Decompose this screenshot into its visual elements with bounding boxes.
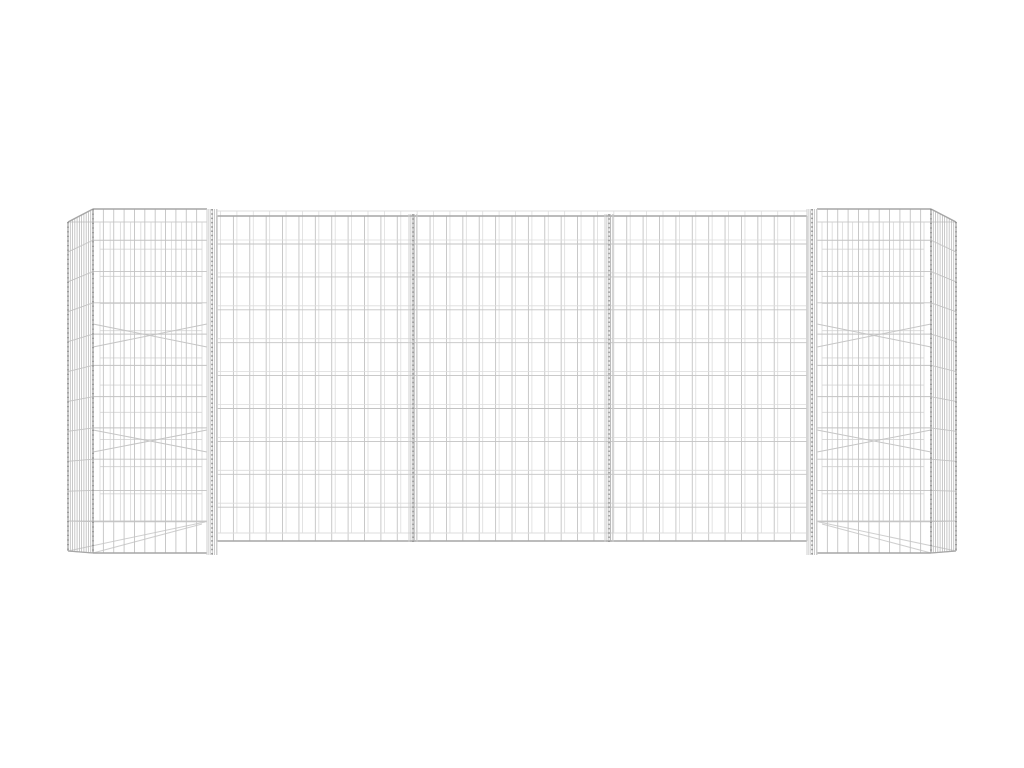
spiral-joint-band	[807, 209, 817, 555]
left-gabion-column	[68, 209, 217, 555]
column-side-face	[68, 209, 93, 553]
gabion-planter-illustration	[0, 0, 1024, 768]
wall-mesh-divider	[409, 214, 417, 542]
wall-mesh-divider	[605, 214, 613, 542]
gabion-wall-panel	[217, 211, 811, 542]
product-photo	[0, 0, 1024, 768]
column-side-face	[931, 209, 956, 553]
spiral-joint-band	[207, 209, 217, 555]
right-gabion-column	[807, 209, 956, 555]
